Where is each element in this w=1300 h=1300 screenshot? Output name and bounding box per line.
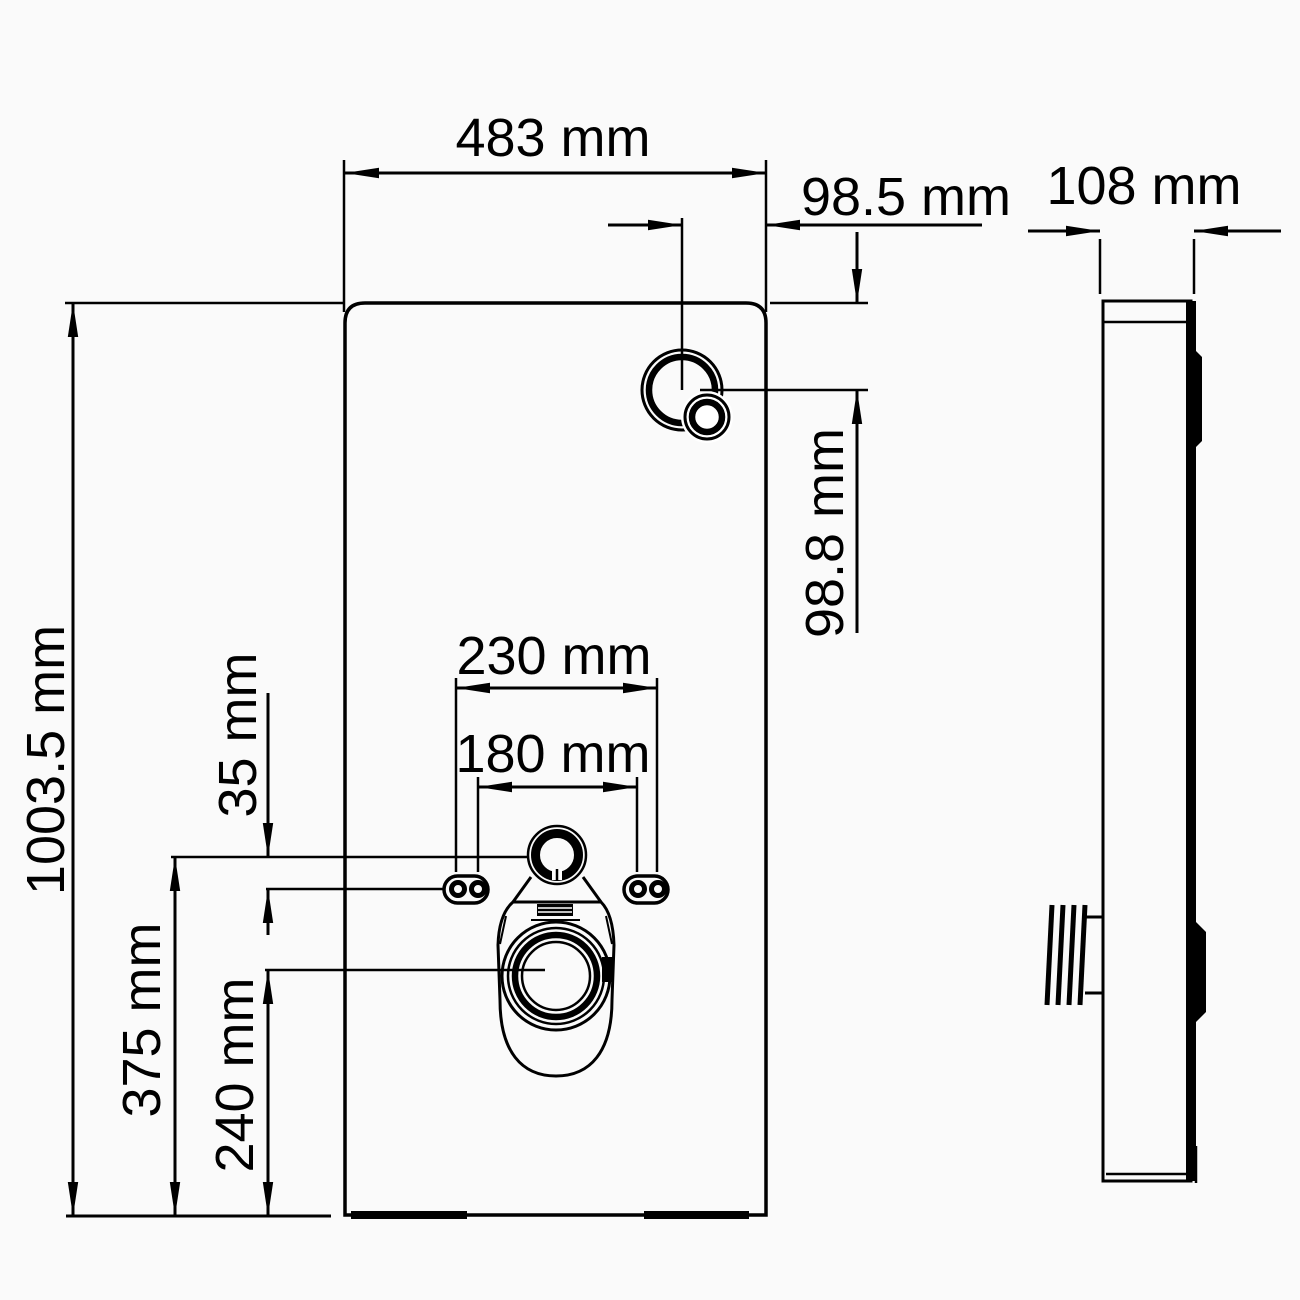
front-foot-left xyxy=(351,1211,467,1219)
water-supply-port xyxy=(528,826,586,884)
dim-label-front-height: 1003.5 mm xyxy=(16,625,76,895)
dim-front-width: 483 mm xyxy=(344,108,766,312)
right-bolt-hole-outer xyxy=(652,883,665,896)
thread-ridge xyxy=(1069,905,1074,1005)
fixture-neck-left xyxy=(513,877,531,902)
drain-fixture xyxy=(265,877,614,1076)
side-body xyxy=(1103,301,1191,1181)
drawing-canvas: 483 mm 98.5 mm 98.8 mm 108 mm xyxy=(0,0,1300,1300)
dim-supply-height: 375 mm xyxy=(112,857,528,1216)
dim-front-height: 1003.5 mm xyxy=(16,303,345,1216)
thread-ridge xyxy=(1058,905,1063,1005)
dimensions: 483 mm 98.5 mm 98.8 mm 108 mm xyxy=(16,108,1281,1216)
left-bolt-hole-inner xyxy=(472,883,485,896)
flush-button xyxy=(642,350,733,443)
drain-ring-3 xyxy=(515,935,597,1017)
thread-ridge xyxy=(1080,905,1085,1005)
dim-label-inner-bolts: 180 mm xyxy=(455,724,650,784)
dim-label-button-offset-y: 98.8 mm xyxy=(795,428,855,638)
dim-side-depth: 108 mm xyxy=(1028,156,1281,294)
wall-bracket-lower xyxy=(1196,922,1206,1022)
dim-label-outlet-height: 240 mm xyxy=(205,977,265,1172)
thread-ridge xyxy=(1047,905,1052,1005)
side-view xyxy=(1047,301,1206,1183)
front-view xyxy=(265,218,766,1219)
drain-opening xyxy=(522,942,590,1010)
dim-label-supply-to-bolts: 35 mm xyxy=(208,652,268,817)
dim-label-outer-bolts: 230 mm xyxy=(456,626,651,686)
left-bolt-hole-outer xyxy=(452,883,465,896)
dim-label-front-width: 483 mm xyxy=(455,108,650,168)
right-bolt-hole-inner xyxy=(632,883,645,896)
fixture-tab xyxy=(537,904,573,916)
side-back-panel xyxy=(1186,301,1196,1181)
dim-button-offset-x: 98.5 mm xyxy=(608,167,1011,227)
wall-bracket-upper xyxy=(1196,351,1202,447)
technical-drawing: 483 mm 98.5 mm 98.8 mm 108 mm xyxy=(0,0,1300,1300)
drain-pipe-thread xyxy=(1047,905,1104,1005)
dim-outlet-height: 240 mm xyxy=(205,970,268,1216)
dim-label-button-offset-x: 98.5 mm xyxy=(801,167,1011,227)
dim-label-side-depth: 108 mm xyxy=(1046,156,1241,216)
front-foot-right xyxy=(644,1211,749,1219)
drain-clip xyxy=(602,957,613,982)
dim-inner-bolts: 180 mm xyxy=(455,724,650,872)
fixture-neck-right xyxy=(583,877,601,902)
dim-supply-to-bolts: 35 mm xyxy=(208,652,443,935)
dim-label-supply-height: 375 mm xyxy=(112,922,172,1117)
